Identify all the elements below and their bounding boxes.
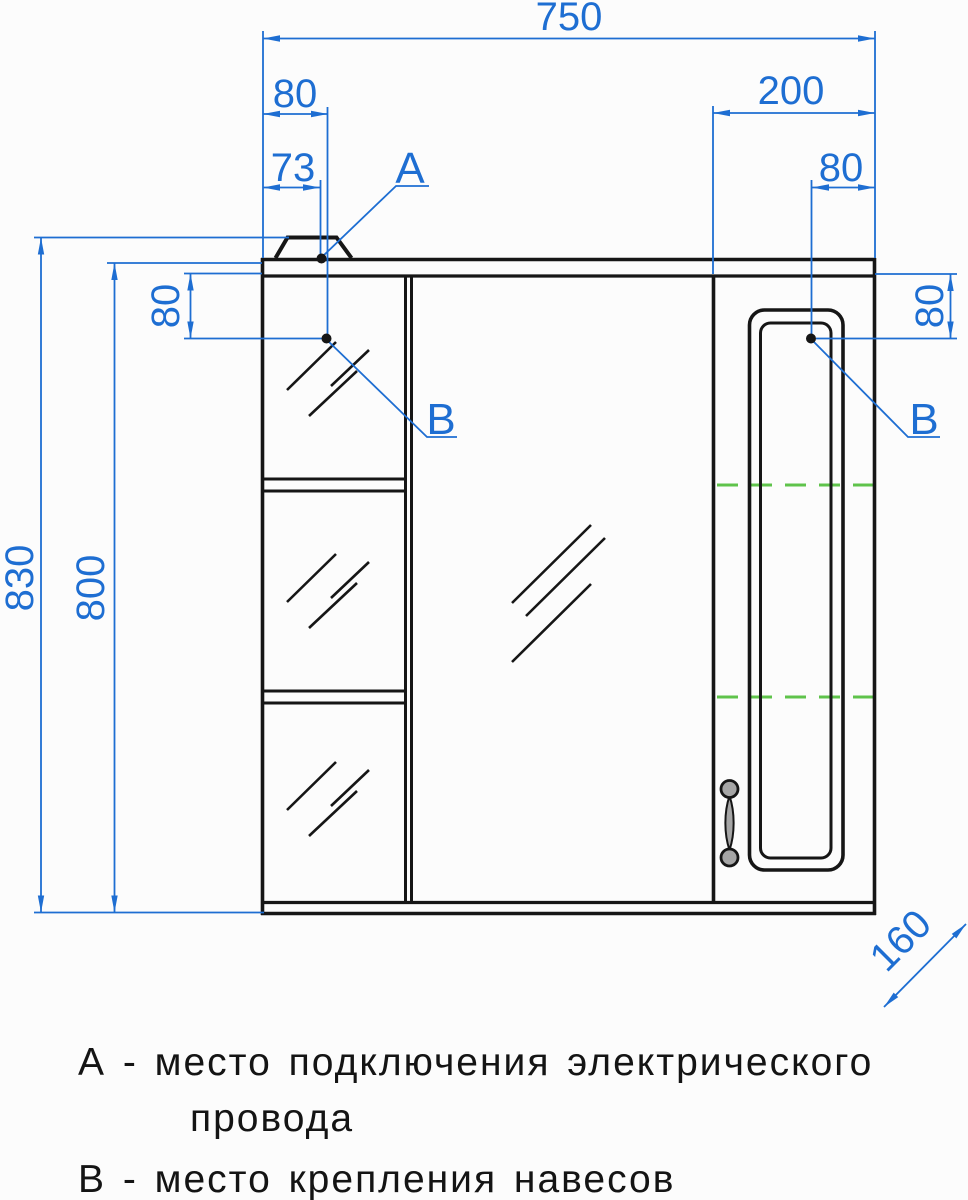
door-panel-outer xyxy=(750,310,844,870)
dimension-labels: 750 80 73 200 80 830 800 80 80 160 А В В xyxy=(0,0,952,980)
dim-80-top-left: 80 xyxy=(273,72,318,116)
cabinet-outline xyxy=(261,238,876,916)
shelf-position-lines xyxy=(717,485,873,697)
note-a-line1: А - место подключения электрического xyxy=(78,1041,873,1084)
technical-drawing-page: 750 80 73 200 80 830 800 80 80 160 А В В… xyxy=(0,0,968,1200)
dim-800: 800 xyxy=(69,555,113,622)
handle-top-knob xyxy=(721,781,738,798)
marker-label-a: А xyxy=(395,144,425,193)
marker-dot-b-right xyxy=(806,334,816,344)
door-panel-inner xyxy=(761,323,832,858)
dim-830: 830 xyxy=(0,545,42,612)
dim-200: 200 xyxy=(758,69,825,113)
door-handle xyxy=(721,781,738,867)
note-a-line2: провода xyxy=(190,1097,354,1140)
leader-a xyxy=(323,186,429,256)
mirror-cabinet-drawing: 750 80 73 200 80 830 800 80 80 160 А В В… xyxy=(0,0,968,1200)
handle-bottom-knob xyxy=(721,849,738,866)
dim-80-left: 80 xyxy=(144,284,188,329)
marker-label-b-left: В xyxy=(426,395,455,444)
marker-dot-b-left xyxy=(322,334,332,344)
handle-spindle xyxy=(725,796,733,850)
note-b: В - место крепления навесов xyxy=(78,1158,675,1200)
dim-80-right: 80 xyxy=(908,284,952,329)
dim-80-top-right: 80 xyxy=(819,146,864,190)
dim-73: 73 xyxy=(271,146,316,190)
legend: А - место подключения электрического про… xyxy=(78,1041,873,1200)
marker-label-b-right: В xyxy=(909,395,938,444)
marker-dot-a xyxy=(317,254,327,264)
dim-total-width: 750 xyxy=(536,0,603,39)
